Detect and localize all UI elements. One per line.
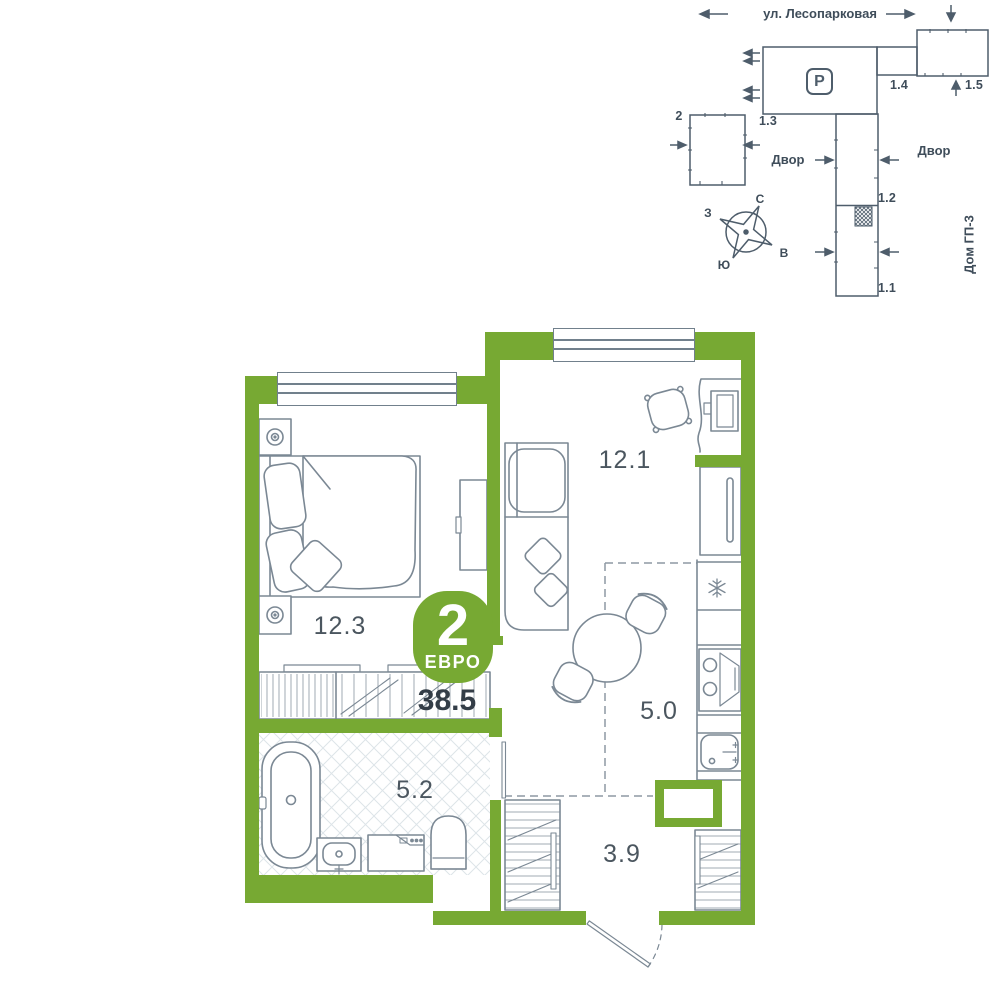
hall-wardrobe-right-icon [695, 830, 741, 910]
stove-icon [699, 649, 741, 711]
office-chair-icon [644, 386, 692, 433]
building-15-outline [917, 30, 988, 76]
site-plan [670, 5, 988, 296]
wall-bathroom-bottom [245, 875, 433, 903]
wall-entry-right [659, 911, 755, 925]
wall-right [741, 332, 755, 925]
fridge-snowflake-icon [709, 579, 725, 597]
badge-type-label: ЕВРО [425, 652, 482, 673]
desk-icon [698, 379, 741, 452]
apartment-location-marker [855, 207, 872, 226]
parking-letter: P [814, 73, 825, 91]
total-area-label: 38.5 [403, 684, 491, 718]
street-arrows [700, 10, 914, 18]
sofa-icon [505, 443, 569, 630]
toilet-icon [431, 816, 466, 869]
bed-icon [259, 456, 420, 597]
vent-shaft [655, 780, 722, 827]
entry-door-icon [587, 921, 662, 967]
washing-machine-icon [368, 835, 424, 871]
room-count-badge: 2 ЕВРО [413, 591, 493, 683]
bath-sink-icon [317, 838, 361, 874]
wall-bathroom-top [245, 719, 490, 733]
compass-icon [720, 206, 772, 258]
badge-room-count: 2 [437, 601, 469, 650]
tall-cabinet-icon [700, 467, 741, 555]
bedroom-window [277, 372, 457, 406]
wall-niche-bottom [433, 911, 497, 925]
wall-entry-left [490, 911, 586, 925]
bathtub-icon [259, 742, 320, 868]
wall-kitchen-stub [695, 455, 741, 467]
kitchen-sink-icon [701, 735, 738, 769]
nightstand-top-icon [259, 419, 291, 455]
building-14-outline [877, 47, 917, 75]
parking-icon: P [806, 68, 833, 95]
bathroom-door-leaf [502, 742, 506, 798]
wall-bath-hall-partition [490, 800, 501, 925]
nightstand-bottom-icon [259, 596, 291, 634]
hall-wardrobe-left-icon [505, 800, 560, 910]
living-window [553, 328, 695, 362]
floorplan-page: ул. Лесопарковая 1.3 1.4 1.5 2 1.2 1.1 Д… [0, 0, 1000, 1000]
tv-stand-icon [456, 480, 487, 570]
building-2-outline [690, 115, 745, 185]
wall-left [245, 376, 259, 903]
